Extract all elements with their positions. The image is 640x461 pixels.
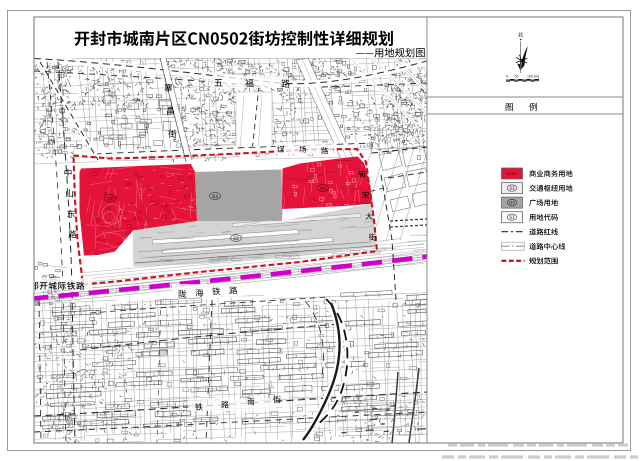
svg-text:0: 0 xyxy=(506,75,508,79)
svg-text:100 (m): 100 (m) xyxy=(527,75,539,79)
svg-text:50: 50 xyxy=(515,75,519,79)
